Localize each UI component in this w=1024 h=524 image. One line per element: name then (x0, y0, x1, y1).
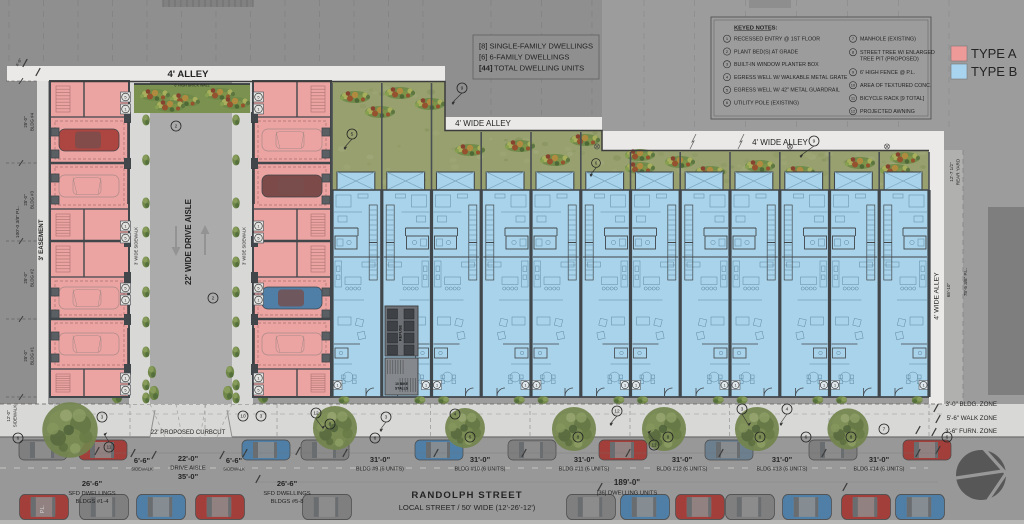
svg-text:25'-0": 25'-0" (23, 116, 28, 128)
svg-text:RECESSED ENTRY @ 1ST FLOOR: RECESSED ENTRY @ 1ST FLOOR (734, 37, 820, 43)
svg-text:TYPE A: TYPE A (971, 46, 1017, 61)
svg-text:8: 8 (374, 436, 377, 442)
svg-text:5'-6" WALK ZONE: 5'-6" WALK ZONE (947, 415, 997, 422)
svg-text:3'-0" BLDG. ZONE: 3'-0" BLDG. ZONE (945, 401, 997, 408)
svg-text:4' WIDE ALLEY: 4' WIDE ALLEY (455, 119, 511, 128)
svg-text:1: 1 (535, 383, 537, 387)
svg-text:BLDG #1: BLDG #1 (30, 346, 35, 365)
svg-text:BLDG #11 (6 UNITS): BLDG #11 (6 UNITS) (559, 467, 610, 473)
svg-text:8: 8 (577, 435, 580, 441)
svg-text:AREA OF TEXTURED CONC.: AREA OF TEXTURED CONC. (860, 83, 931, 89)
svg-text:11: 11 (652, 443, 657, 449)
svg-text:3: 3 (741, 407, 744, 413)
svg-text:4: 4 (454, 412, 457, 418)
svg-text:3' WIDE SIDEWALK: 3' WIDE SIDEWALK (134, 227, 139, 265)
svg-text:100'-0 3/8" P.L.: 100'-0 3/8" P.L. (15, 206, 21, 238)
svg-text:SIDEWALK: SIDEWALK (13, 405, 18, 428)
svg-text:1: 1 (624, 383, 626, 387)
svg-text:BLDGS #1-4: BLDGS #1-4 (76, 499, 110, 505)
svg-text:12'-7 1/2": 12'-7 1/2" (949, 162, 954, 182)
svg-text:10: 10 (851, 83, 856, 88)
svg-text:31'-0": 31'-0" (470, 455, 491, 464)
svg-text:6: 6 (17, 436, 20, 442)
svg-text:1: 1 (823, 383, 825, 387)
svg-text:1: 1 (524, 383, 526, 387)
svg-text:[6] 6-FAMILY DWELLINGS: [6] 6-FAMILY DWELLINGS (479, 53, 569, 62)
svg-text:3'-6" FURN. ZONE: 3'-6" FURN. ZONE (945, 428, 997, 435)
svg-text:12: 12 (851, 109, 856, 114)
svg-text:BICYCLE RACK [9 TOTAL]: BICYCLE RACK [9 TOTAL] (860, 96, 925, 102)
svg-text:RANDOLPH STREET: RANDOLPH STREET (411, 490, 522, 501)
svg-text:TOTAL DWELLING UNITS: TOTAL DWELLING UNITS (494, 64, 584, 73)
svg-text:35'-0": 35'-0" (178, 472, 199, 481)
svg-text:8: 8 (850, 435, 853, 441)
svg-text:1: 1 (436, 383, 438, 387)
svg-text:STALLS: STALLS (395, 387, 409, 391)
svg-text:[44]: [44] (479, 64, 493, 73)
svg-text:12: 12 (313, 411, 319, 417)
svg-text:25'-0": 25'-0" (23, 272, 28, 284)
svg-text:BLDG #14 (6 UNITS): BLDG #14 (6 UNITS) (854, 467, 905, 473)
svg-text:10 BIKE: 10 BIKE (395, 382, 409, 386)
svg-text:PROJECTED AWNING: PROJECTED AWNING (860, 109, 915, 115)
svg-text:8: 8 (759, 435, 762, 441)
svg-text:22' PROPOSED CURBCUT: 22' PROPOSED CURBCUT (151, 430, 226, 436)
svg-text:EGRESS WELL W/ WALKABLE METAL: EGRESS WELL W/ WALKABLE METAL GRATE (734, 75, 848, 81)
svg-text:2: 2 (175, 124, 178, 130)
svg-text:6' HIGH BRICK WALL: 6' HIGH BRICK WALL (174, 84, 209, 88)
svg-text:[8] SINGLE-FAMILY DWELLINGS: [8] SINGLE-FAMILY DWELLINGS (479, 42, 593, 51)
svg-text:22'-0": 22'-0" (178, 454, 199, 463)
svg-text:9: 9 (813, 139, 816, 145)
svg-text:65'-10": 65'-10" (946, 283, 951, 298)
svg-text:BUILT-IN WINDOW PLANTER BOX: BUILT-IN WINDOW PLANTER BOX (734, 62, 819, 68)
svg-text:P.L.: P.L. (40, 505, 46, 513)
svg-text:REAR YARD: REAR YARD (956, 158, 961, 185)
svg-text:25'-0": 25'-0" (23, 350, 28, 362)
svg-text:3' EASEMENT: 3' EASEMENT (38, 219, 45, 260)
svg-text:SIDEWALK: SIDEWALK (223, 467, 245, 472)
svg-text:BLDGS #5-8: BLDGS #5-8 (271, 499, 304, 505)
svg-text:6: 6 (946, 435, 949, 441)
svg-text:7: 7 (883, 427, 886, 433)
svg-text:1: 1 (425, 383, 427, 387)
svg-text:BLDG #2: BLDG #2 (30, 268, 35, 287)
svg-text:REFUSE: REFUSE (398, 325, 403, 342)
svg-text:PLANT BED(S) AT GRADE: PLANT BED(S) AT GRADE (734, 49, 799, 55)
svg-text:22' WIDE DRIVE AISLE: 22' WIDE DRIVE AISLE (184, 198, 193, 285)
svg-text:26'-6": 26'-6" (82, 479, 103, 488)
svg-text:4' WIDE ALLEY: 4' WIDE ALLEY (752, 138, 808, 147)
svg-text:4' ALLEY: 4' ALLEY (168, 69, 210, 80)
svg-text:TYPE B: TYPE B (971, 64, 1017, 79)
svg-text:BLDG #3: BLDG #3 (30, 190, 35, 209)
svg-text:31'-0": 31'-0" (869, 455, 890, 464)
svg-text:6'-6": 6'-6" (226, 456, 243, 465)
svg-text:11: 11 (107, 445, 112, 451)
svg-text:25'-0": 25'-0" (23, 194, 28, 206)
svg-text:MANHOLE (EXISTING): MANHOLE (EXISTING) (860, 37, 916, 43)
svg-text:SFD DWELLINGS: SFD DWELLINGS (263, 491, 310, 497)
svg-text:31'-0": 31'-0" (772, 455, 793, 464)
svg-text:6' HIGH FENCE @ P.L.: 6' HIGH FENCE @ P.L. (860, 70, 915, 76)
svg-text:31'-0": 31'-0" (574, 455, 595, 464)
svg-text:12'-0": 12'-0" (6, 410, 11, 422)
svg-text:26'-6": 26'-6" (277, 479, 298, 488)
svg-text:5: 5 (351, 132, 354, 138)
svg-text:EGRESS WELL W/ 42" METAL GUARD: EGRESS WELL W/ 42" METAL GUARDRAIL (734, 88, 840, 94)
svg-text:4: 4 (786, 407, 789, 413)
svg-text:3: 3 (101, 415, 104, 421)
svg-text:1: 1 (336, 383, 338, 387)
svg-text:31'-0": 31'-0" (672, 455, 693, 464)
svg-text:BLDG #12 (6 UNITS): BLDG #12 (6 UNITS) (657, 467, 708, 473)
svg-text:4' WIDE ALLEY: 4' WIDE ALLEY (934, 272, 941, 320)
svg-text:SFD DWELLINGS: SFD DWELLINGS (68, 491, 115, 497)
svg-text:3: 3 (385, 415, 388, 421)
svg-text:10: 10 (240, 414, 246, 420)
svg-text:8: 8 (667, 435, 670, 441)
svg-text:1: 1 (723, 383, 725, 387)
svg-text:1: 1 (834, 383, 836, 387)
svg-text:BLDG #10 (6 UNITS): BLDG #10 (6 UNITS) (455, 467, 506, 473)
svg-text:STREET TREE W/ ENLARGED: STREET TREE W/ ENLARGED (860, 50, 935, 56)
svg-text:SIDEWALK: SIDEWALK (131, 467, 153, 472)
svg-text:BLDG #13 (6 UNITS): BLDG #13 (6 UNITS) (757, 467, 808, 473)
svg-text:12: 12 (614, 409, 620, 415)
svg-text:8: 8 (329, 422, 332, 428)
svg-text:TREE PIT (PROPOSED): TREE PIT (PROPOSED) (860, 56, 919, 62)
svg-text:31'-0": 31'-0" (370, 455, 391, 464)
svg-text:BLDG #9 (6 UNITS): BLDG #9 (6 UNITS) (356, 467, 404, 473)
svg-text:78'-5 3/8" P.L.: 78'-5 3/8" P.L. (963, 268, 968, 296)
svg-text:9: 9 (461, 86, 464, 92)
svg-text:189'-0": 189'-0" (614, 478, 640, 487)
svg-text:DRIVE AISLE: DRIVE AISLE (170, 466, 206, 472)
svg-text:1: 1 (734, 383, 736, 387)
svg-text:[36] DWELLING UNITS: [36] DWELLING UNITS (597, 491, 658, 497)
svg-text:LOCAL STREET / 50' WIDE (12'-2: LOCAL STREET / 50' WIDE (12'-26'-12') (399, 503, 536, 512)
svg-text:1: 1 (922, 383, 924, 387)
svg-text:1: 1 (635, 383, 637, 387)
svg-text:3' WIDE SIDEWALK: 3' WIDE SIDEWALK (242, 227, 247, 265)
svg-text:BLDG #4: BLDG #4 (30, 112, 35, 131)
svg-text:6'-6": 6'-6" (134, 456, 151, 465)
svg-text:3: 3 (260, 414, 263, 420)
svg-text:2: 2 (212, 296, 215, 302)
svg-text:6: 6 (469, 435, 472, 441)
svg-text:UTILITY POLE (EXISTING): UTILITY POLE (EXISTING) (734, 101, 799, 107)
svg-text:6: 6 (805, 435, 808, 441)
